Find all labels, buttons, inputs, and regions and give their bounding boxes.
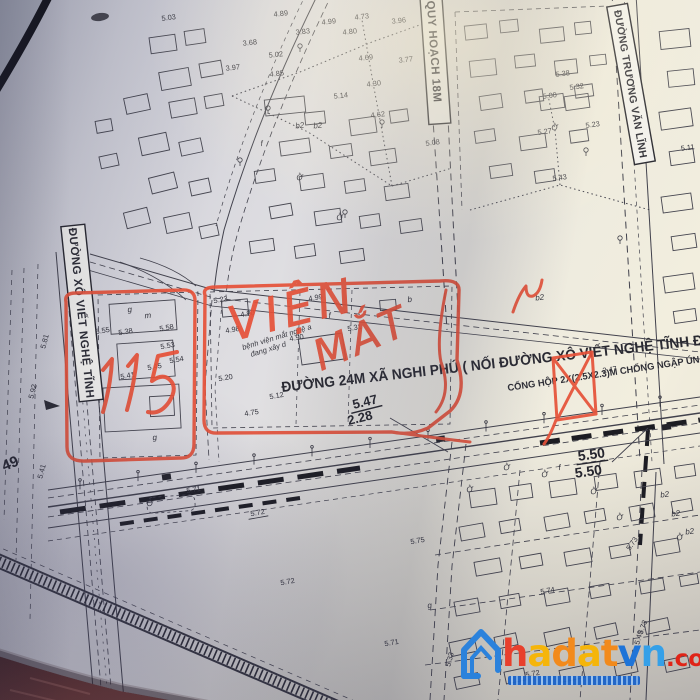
- parcel-letter: m: [144, 311, 152, 321]
- red-x-mark: [544, 352, 596, 444]
- parcel: [659, 28, 691, 49]
- watermark-letter: t: [601, 632, 618, 675]
- parcel-letter: f: [260, 139, 264, 148]
- parcel: [499, 593, 521, 608]
- parcel: [589, 583, 611, 598]
- dimension-label: 2.28: [346, 407, 374, 428]
- spot-elevation: 4.99: [321, 16, 336, 26]
- spot-elevation: 4.89: [273, 8, 288, 18]
- spot-elevation: 3.97: [225, 62, 240, 72]
- parcel: [199, 60, 223, 78]
- parcel-letter: g: [152, 433, 158, 442]
- parcel: [499, 518, 521, 533]
- spot-elevation: 5.11: [680, 142, 695, 153]
- parcel-letter: b2: [295, 121, 305, 131]
- parcel: [344, 179, 365, 194]
- parcel: [663, 273, 695, 293]
- parcel: [99, 153, 119, 168]
- watermark-letter: v: [617, 632, 640, 675]
- parcel: [204, 94, 224, 109]
- spot-elevation: 5.75: [410, 535, 426, 546]
- parcel: [359, 214, 380, 229]
- ink-smudge: [91, 12, 110, 22]
- spot-elevation: 5.73: [624, 535, 640, 552]
- parcel-letter: g: [127, 305, 133, 314]
- parcel: [474, 558, 502, 576]
- parcel: [679, 574, 698, 587]
- paper-corner-background: [0, 0, 109, 94]
- parcel: [673, 309, 696, 324]
- parcel-letter: Ở: [503, 462, 512, 472]
- parcel: [549, 478, 577, 497]
- parcel: [569, 129, 588, 143]
- parcel: [254, 169, 275, 184]
- spot-elevation: 5.23: [585, 119, 601, 130]
- parcel: [249, 238, 274, 253]
- parcel-letter: b2: [685, 526, 696, 536]
- parcel: [574, 21, 591, 35]
- spot-elevation: 4.80: [342, 26, 357, 36]
- parcel: [339, 248, 364, 263]
- watermark-suffix-text: .com.vn: [666, 646, 700, 672]
- parcel: [539, 27, 564, 43]
- watermark-brand-text: hadatvn: [502, 651, 666, 670]
- watermark-letter: d: [551, 632, 577, 675]
- parcel: [661, 193, 693, 213]
- road-label-truong-van-linh: ĐƯỜNG TRƯƠNG VĂN LĨNH: [607, 3, 655, 164]
- parcel: [509, 484, 533, 501]
- dimension-labels: 5.472.285.505.5049: [0, 391, 608, 481]
- parcel: [671, 233, 697, 250]
- parcel: [169, 98, 197, 118]
- spot-elevation: 5.12: [269, 390, 285, 401]
- parcel: [179, 138, 203, 156]
- spot-elevation: 5.02: [268, 49, 283, 59]
- parcel: [514, 54, 535, 68]
- parcel: [469, 488, 497, 507]
- parcel-letter: Ở: [466, 484, 475, 494]
- spot-elevation: 5.41: [35, 463, 47, 479]
- parcel-letter: Ở: [551, 122, 560, 132]
- house-icon: [458, 624, 504, 682]
- spot-elevation: 5.72: [280, 576, 296, 587]
- parcel-letter: b2: [660, 489, 671, 499]
- parcel: [384, 183, 410, 200]
- spot-elevation: 5.43: [552, 172, 568, 183]
- parcel-letter: Ở: [296, 172, 305, 182]
- parcel: [159, 68, 192, 91]
- parcel: [123, 207, 150, 228]
- parcel: [189, 178, 211, 196]
- parcel: [659, 108, 693, 130]
- dimension-label: 49: [0, 453, 21, 475]
- spot-elevation: 5.14: [333, 90, 348, 100]
- cadastral-map-drawing: ĐƯỜNG 24M XÃ NGHI PHÚ ( NỐI ĐƯỜNG XÔ VIẾ…: [0, 0, 700, 700]
- parcel-letter: b2: [313, 121, 323, 131]
- spot-elevation: 5.38: [118, 326, 134, 337]
- spot-elevation: 5.03: [161, 12, 177, 23]
- spot-elevation: 3.96: [391, 15, 406, 25]
- parcel: [124, 94, 151, 115]
- parcel: [294, 244, 315, 259]
- spot-elevation: 5.55: [95, 325, 111, 336]
- parcel: [584, 508, 606, 523]
- spot-elevation: 5.32: [569, 81, 585, 92]
- parcel: [469, 59, 497, 78]
- parcel: [184, 29, 206, 46]
- parcel: [590, 54, 607, 66]
- parcel: [329, 144, 352, 159]
- parcel: [454, 598, 480, 616]
- parcel-letter: b2: [671, 508, 682, 518]
- spot-elevation: 5.81: [38, 333, 50, 349]
- watermark-letter: a: [577, 632, 601, 675]
- spot-elevation: 5.92: [26, 383, 38, 399]
- parcel-letter: b: [407, 295, 413, 304]
- spot-elevation: 3.68: [242, 37, 257, 47]
- spot-elevation: 5.27: [537, 126, 553, 137]
- parcel: [138, 132, 169, 155]
- spot-elevation: 4.69: [358, 52, 373, 62]
- parcel: [474, 129, 495, 144]
- road-label-quy-hoach-18m: ĐƯỜNG QUY HOẠCH 18M: [415, 0, 451, 125]
- parcel: [479, 94, 503, 111]
- spot-elevation: 5.08: [425, 137, 441, 148]
- parcel: [149, 34, 177, 53]
- red-box-bottom-extension: [392, 432, 470, 442]
- spot-elevation: 5.58: [159, 322, 175, 333]
- parcel: [564, 548, 592, 566]
- parcel: [524, 89, 543, 103]
- spot-elevation: 3.83: [295, 26, 310, 36]
- spot-elevation: 4.30: [366, 78, 381, 88]
- parcel: [544, 513, 570, 531]
- handwritten-115: [103, 352, 177, 413]
- parcel: [369, 148, 397, 165]
- parcel: [464, 24, 487, 40]
- spot-elevation: 5.71: [384, 637, 400, 648]
- parcel: [674, 464, 695, 479]
- parcel: [667, 69, 695, 88]
- spot-elevation: 5.00: [542, 90, 558, 101]
- parcel: [489, 164, 512, 179]
- parcel: [499, 19, 518, 33]
- spot-elevation: 5.38: [555, 68, 571, 79]
- parcel: [279, 138, 311, 156]
- parcel: [269, 203, 293, 219]
- parcel: [389, 109, 408, 123]
- parcel: [299, 173, 325, 190]
- parcel: [148, 172, 177, 194]
- parcel-letter: Ở: [676, 532, 685, 542]
- photo-of-planning-map: ĐƯỜNG 24M XÃ NGHI PHÚ ( NỐI ĐƯỜNG XÔ VIẾ…: [0, 0, 700, 700]
- direction-arrow: [44, 400, 60, 410]
- spot-elevation: 5.54: [169, 354, 185, 365]
- spot-elevation: 4.75: [244, 407, 260, 418]
- watermark-tagline-bar: [508, 676, 640, 685]
- parcel: [459, 523, 485, 541]
- parcel: [564, 93, 590, 110]
- parcel: [164, 212, 193, 233]
- spot-elevation: 5.20: [218, 372, 234, 383]
- watermark-letter: n: [641, 632, 666, 675]
- parcel-letter: Ở: [541, 469, 550, 479]
- watermark-letter: h: [502, 632, 527, 675]
- watermark: hadatvn.com.vn: [448, 616, 700, 700]
- parcel-letter: g: [427, 601, 433, 611]
- spot-elevation: 4.73: [354, 11, 369, 21]
- parcel: [634, 468, 662, 487]
- spot-elevation: 5.74: [540, 585, 556, 596]
- parcel: [519, 553, 543, 569]
- parcel: [399, 219, 422, 234]
- spot-elevation: 4.62: [370, 109, 385, 119]
- watermark-letter: a: [527, 632, 551, 675]
- red-box-double-stroke: [436, 290, 446, 412]
- spot-elevation: 3.77: [398, 54, 413, 64]
- parcel-letter: Ở: [616, 512, 625, 522]
- parcel: [95, 119, 113, 134]
- parcel-letter: f: [558, 463, 562, 472]
- parcel: [103, 384, 181, 432]
- spot-elevation: 4.85: [269, 68, 284, 78]
